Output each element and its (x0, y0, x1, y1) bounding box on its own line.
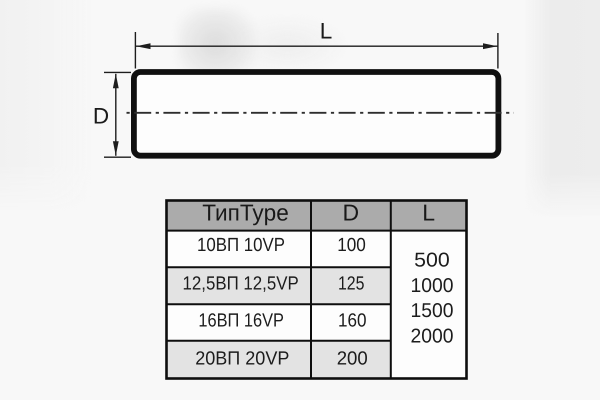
svg-text:160: 160 (338, 311, 367, 332)
svg-text:1500: 1500 (411, 300, 454, 322)
svg-text:L: L (422, 200, 435, 226)
svg-text:10ВП 10VP: 10ВП 10VP (197, 235, 285, 256)
svg-text:125: 125 (338, 274, 365, 295)
svg-text:20ВП 20VP: 20ВП 20VP (195, 349, 289, 370)
svg-text:1000: 1000 (411, 275, 454, 297)
svg-text:200: 200 (337, 349, 368, 370)
svg-text:12,5ВП 12,5VP: 12,5ВП 12,5VP (183, 274, 299, 295)
svg-text:ТипType: ТипType (202, 199, 289, 225)
svg-text:D: D (93, 104, 109, 129)
svg-text:L: L (320, 18, 333, 43)
svg-text:500: 500 (414, 250, 450, 272)
svg-text:100: 100 (337, 235, 366, 256)
svg-text:D: D (342, 200, 359, 226)
svg-text:16ВП 16VP: 16ВП 16VP (198, 311, 284, 332)
svg-text:2000: 2000 (411, 326, 454, 348)
